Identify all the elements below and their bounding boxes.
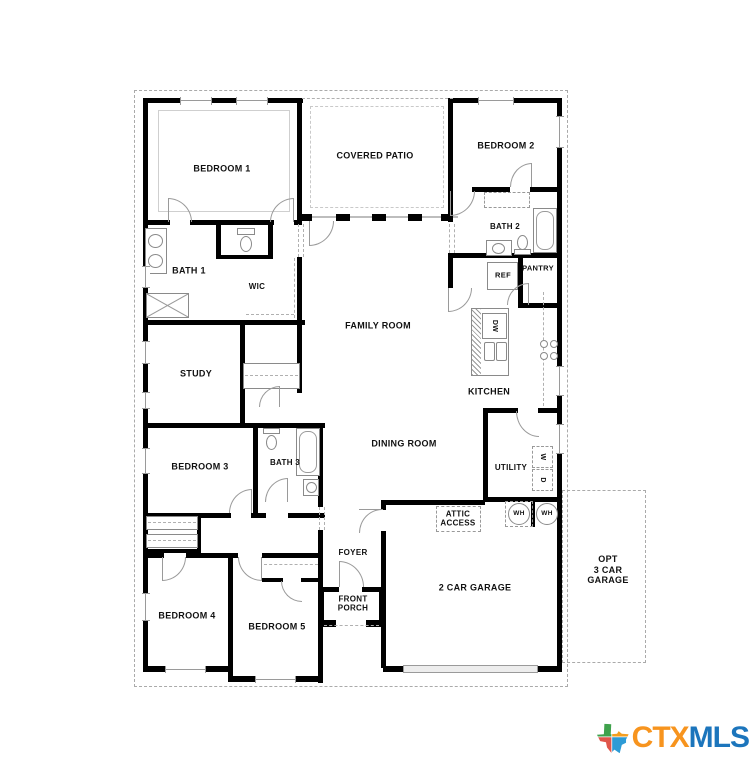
texas-quad-red — [597, 736, 612, 753]
wall — [262, 553, 320, 558]
wall — [206, 666, 233, 672]
logo-text-ctx: CTX — [632, 723, 689, 753]
window — [142, 266, 150, 288]
patio-post — [372, 214, 386, 221]
opening-dash — [319, 507, 320, 530]
room-label-attic-access: ATTIC ACCESS — [440, 510, 475, 529]
texas-quad-green — [597, 723, 612, 737]
texas-quad-blue — [612, 736, 629, 753]
wic-shelf-dash — [246, 314, 294, 315]
door-leaf — [528, 283, 529, 305]
opening-dash — [449, 224, 450, 253]
counter-edge — [543, 292, 544, 406]
burner — [550, 340, 558, 348]
wall — [538, 666, 562, 672]
toilet-bowl — [266, 435, 277, 450]
opening-dash — [298, 224, 299, 257]
room-label-utility: UTILITY — [495, 463, 527, 473]
patio-roof-edge — [302, 98, 453, 99]
wall — [143, 320, 305, 325]
room-label-bath3: BATH 3 — [270, 458, 300, 468]
front-porch-line1: FRONT — [338, 595, 367, 604]
toilet-bowl — [517, 235, 528, 250]
window — [142, 392, 150, 409]
window — [142, 593, 150, 621]
door-leaf — [162, 557, 163, 581]
closet-shelf — [146, 534, 198, 548]
wall — [268, 222, 273, 259]
wall — [381, 531, 386, 668]
wall — [297, 257, 302, 325]
room-label-family-room: FAMILY ROOM — [345, 321, 411, 332]
patio-post — [408, 214, 422, 221]
wall — [143, 98, 148, 672]
wall — [297, 98, 302, 225]
sink-basin — [484, 342, 495, 361]
door-leaf — [531, 163, 532, 187]
opening-dash — [324, 507, 325, 530]
room-label-dining-room: DINING ROOM — [371, 439, 436, 450]
toilet-bowl — [240, 236, 252, 252]
room-label-bedroom3: BEDROOM 3 — [171, 462, 228, 473]
wall — [530, 187, 559, 192]
wic-shelf-dash — [294, 258, 295, 318]
porch-edge — [324, 625, 379, 626]
door-leaf — [359, 509, 383, 510]
burner — [540, 352, 548, 360]
window — [478, 97, 514, 105]
room-label-bath1: BATH 1 — [172, 266, 206, 277]
door-leaf — [168, 198, 169, 222]
door-leaf — [293, 198, 294, 222]
sink-basin — [496, 342, 507, 361]
sink — [148, 234, 163, 248]
toilet — [263, 428, 280, 434]
room-label-washer: W — [538, 454, 546, 461]
door-leaf — [279, 386, 280, 407]
room-label-front-porch: FRONT PORCH — [338, 595, 368, 614]
door-leaf — [251, 489, 252, 513]
room-label-pantry: PANTRY — [522, 264, 554, 273]
window — [556, 116, 564, 148]
door-leaf — [448, 288, 449, 312]
room-label-dishwasher: DW — [490, 320, 498, 332]
wall — [143, 553, 164, 558]
tub-inner — [536, 211, 554, 250]
window — [236, 97, 268, 105]
ceiling-tray — [158, 110, 290, 212]
room-label-bedroom2: BEDROOM 2 — [477, 141, 534, 152]
sink — [306, 482, 317, 493]
label-water-heater-1: WH — [513, 510, 524, 518]
attic-access-line1: ATTIC — [446, 510, 470, 519]
front-porch-line2: PORCH — [338, 604, 368, 613]
room-label-covered-patio: COVERED PATIO — [336, 151, 413, 162]
wall — [448, 255, 453, 288]
window — [165, 666, 206, 673]
opt-garage-line1: OPT — [598, 554, 617, 564]
wall — [296, 676, 323, 682]
wall — [253, 428, 258, 513]
wall — [228, 553, 233, 678]
window — [142, 448, 150, 474]
shelf-dash — [148, 540, 196, 541]
shelf-dash — [148, 522, 196, 523]
wall — [218, 255, 273, 259]
room-label-opt-garage: OPT 3 CAR GARAGE — [587, 554, 628, 586]
room-label-study: STUDY — [180, 369, 212, 380]
linen-shelf — [484, 192, 530, 208]
room-label-garage: 2 CAR GARAGE — [439, 583, 512, 594]
wall — [538, 408, 562, 413]
wall — [262, 578, 283, 582]
island-bar-hatch — [472, 309, 481, 375]
burner — [550, 352, 558, 360]
door-leaf — [450, 191, 451, 216]
sink — [492, 243, 505, 254]
opening-dash — [303, 224, 304, 257]
room-label-kitchen: KITCHEN — [468, 387, 510, 398]
wall — [228, 676, 255, 682]
patio-post — [336, 214, 350, 221]
window — [255, 676, 296, 683]
room-label-bedroom1: BEDROOM 1 — [193, 164, 250, 175]
wall — [190, 220, 274, 225]
wall — [483, 408, 488, 500]
door-leaf — [339, 561, 340, 587]
opening-dash — [454, 224, 455, 253]
wall — [143, 98, 303, 103]
room-label-wic: WIC — [249, 282, 265, 292]
shelf-dash — [245, 375, 298, 376]
wall — [251, 513, 266, 518]
window — [142, 341, 150, 364]
room-label-bath2: BATH 2 — [490, 222, 520, 232]
shower — [146, 293, 189, 318]
window — [556, 424, 564, 454]
wall — [483, 408, 518, 413]
toilet — [237, 228, 255, 235]
door-leaf — [261, 557, 262, 581]
label-water-heater-2: WH — [541, 510, 552, 518]
texas-quad-orange — [612, 723, 629, 737]
patio-post — [302, 214, 312, 221]
burner — [540, 340, 548, 348]
door-leaf — [287, 478, 288, 502]
texas-icon — [597, 716, 629, 761]
floor-plan: BEDROOM 1 COVERED PATIO BEDROOM 2 BATH 1… — [0, 0, 754, 768]
window — [180, 97, 212, 105]
wall — [143, 666, 165, 672]
shelf-dash — [264, 564, 318, 565]
wall — [143, 220, 170, 225]
logo-text-mls: MLS — [689, 723, 749, 753]
room-label-dryer: D — [538, 477, 546, 482]
ctxmls-logo: CTX MLS — [597, 712, 749, 764]
window — [556, 366, 564, 396]
wall — [216, 222, 221, 259]
wall — [321, 590, 324, 622]
door-leaf — [309, 221, 310, 246]
room-label-foyer: FOYER — [338, 548, 367, 558]
shower-x — [147, 294, 188, 317]
linen-closet — [243, 363, 300, 389]
opt-garage-line2: 3 CAR — [594, 565, 623, 575]
wall — [383, 666, 403, 672]
wall — [383, 500, 485, 505]
garage-door — [403, 665, 538, 673]
tub-inner — [299, 431, 317, 473]
attic-access-line2: ACCESS — [440, 519, 475, 528]
sink — [148, 254, 163, 268]
room-label-bedroom4: BEDROOM 4 — [158, 611, 215, 622]
opt-garage-line3: GARAGE — [587, 575, 628, 585]
room-label-ref: REF — [495, 271, 511, 280]
room-label-bedroom5: BEDROOM 5 — [248, 622, 305, 633]
closet-shelf — [146, 516, 198, 530]
